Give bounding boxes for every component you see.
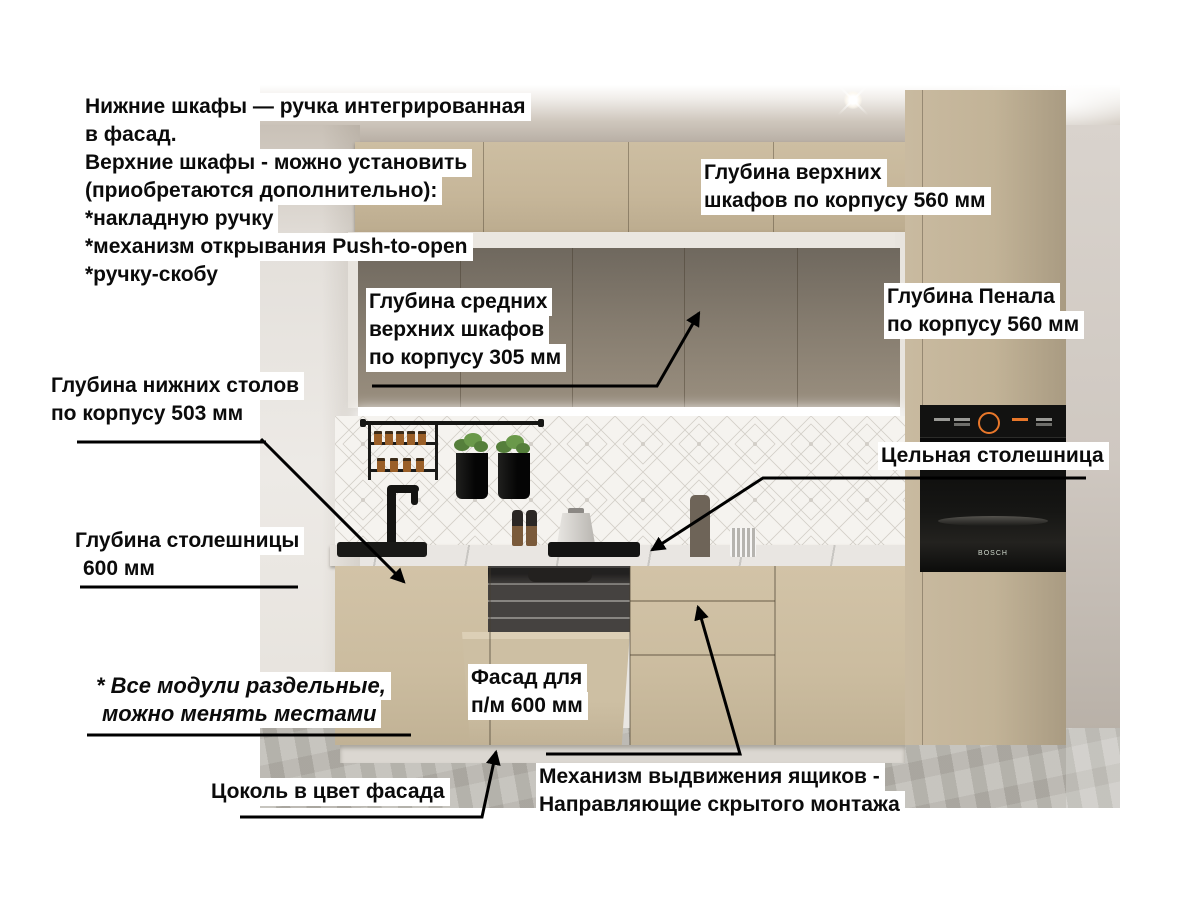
callout-tall-depth: Глубина Пенала по корпусу 560 мм <box>884 283 1084 339</box>
glass-tumbler <box>730 528 756 557</box>
callout-base-depth: Глубина нижних столов по корпусу 503 мм <box>48 372 304 428</box>
floor-right-light <box>1066 728 1120 808</box>
kettle <box>557 513 595 544</box>
hanging-pot-right <box>498 453 530 499</box>
built-in-oven: BOSCH <box>920 405 1066 572</box>
annotated-kitchen-page: BOSCH <box>0 0 1201 900</box>
drawer-unit <box>630 566 775 745</box>
cooktop <box>548 542 640 557</box>
callout-modules-note: * Все модули раздельные, можно менять ме… <box>93 672 391 728</box>
callout-countertop-depth: Глубина столешницы 600 мм <box>72 527 304 583</box>
callout-solid-countertop: Цельная столешница <box>878 442 1109 470</box>
base-cabinet-right <box>775 566 905 745</box>
dishwasher-handle-recess <box>528 568 592 582</box>
callout-plinth-note: Цоколь в цвет фасада <box>208 778 450 806</box>
oven-dial-icon <box>978 412 1000 434</box>
plinth <box>340 745 905 763</box>
callout-middle-upper-depth: Глубина средних верхних шкафов по корпус… <box>366 288 566 372</box>
cutting-board <box>690 495 710 557</box>
ceiling-light-icon <box>844 91 862 109</box>
hanging-pot-left <box>456 453 488 499</box>
callout-drawer-mechanism: Механизм выдвижения ящиков - Направляющи… <box>536 763 905 819</box>
oven-control-panel <box>920 405 1066 438</box>
callout-dishwasher-facade: Фасад для п/м 600 мм <box>468 664 588 720</box>
spice-shelf <box>368 425 438 480</box>
callout-handles-note: Нижние шкафы — ручка интегрированная в ф… <box>82 93 531 289</box>
right-wall <box>1066 125 1120 730</box>
led-strip <box>358 407 900 416</box>
oven-brand-logo: BOSCH <box>920 550 1066 557</box>
pepper-grinder-left <box>512 510 523 546</box>
sink <box>337 542 427 557</box>
pepper-grinder-right <box>526 510 537 546</box>
callout-upper-depth: Глубина верхних шкафов по корпусу 560 мм <box>701 159 991 215</box>
